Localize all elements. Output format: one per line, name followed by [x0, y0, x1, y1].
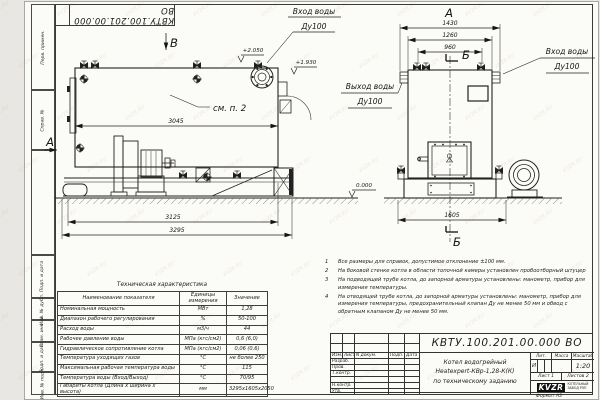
table-row: Номинальная мощностьМВт1,28	[58, 306, 268, 316]
table-row: Рабочее давление водыМПа (кгс/см2)0,6 (6…	[58, 335, 268, 345]
end-inlet-label-1: Вход воды	[546, 47, 588, 56]
note-item: 3На подводящей трубе котла, до запорной …	[325, 277, 588, 292]
drawing-page: Перв. примен. Справ. № Подп. и дата Инв.…	[0, 0, 600, 400]
section-label-b-top: Б	[462, 48, 470, 62]
manufacturer-logo: KVZR КОТЕЛЬНЫЙ ЗАВОД РЭП	[531, 381, 594, 393]
dim-3125: 3125	[165, 214, 180, 221]
kvzr-logo: KVZR	[537, 383, 566, 392]
table-row: Температура уходящих газов°Сне более 250	[58, 354, 268, 364]
table-row: Максимальная рабочая температура воды°С1…	[58, 364, 268, 374]
title-block-sheets: Листов 2	[562, 373, 594, 380]
elev-2050: +2.050	[243, 48, 264, 54]
spec-table: Наименование показателя Единицы измерени…	[57, 291, 268, 397]
see-note-text: см. п. 2	[213, 104, 246, 114]
end-outlet-label-2: Ду100	[357, 97, 383, 106]
dim-3295: 3295	[169, 227, 184, 234]
note-item: 1Все размеры для справок, допустимое отк…	[325, 259, 588, 267]
spec-table-title: Техническая характеристика	[57, 282, 267, 288]
note-item: 2На боковой стенке котла в области топоч…	[325, 268, 588, 276]
spec-table-body: Номинальная мощностьМВт1,28Диапазон рабо…	[58, 306, 268, 397]
table-row: Гидравлическое сопротивление котлаМПа (к…	[58, 345, 268, 355]
spec-header-name: Наименование показателя	[58, 292, 180, 306]
table-row: Диапазон рабочего регулирования%50-100	[58, 315, 268, 325]
title-block-sheet: Лист 1	[531, 373, 562, 380]
side-view	[44, 17, 376, 239]
dim-1430: 1430	[442, 20, 457, 27]
elev-1930: +1.930	[296, 60, 317, 66]
title-block-scale: 1:20	[572, 360, 594, 372]
table-row: Габариты котла (Длина х ширина х высота)…	[58, 384, 268, 397]
title-block-part-name: Котел водогрейный Heatexpert-КВр-1,28-К(…	[419, 353, 531, 394]
title-block-right: Лит. Масса Масштаб И 1:20 Лист 1 Листов …	[531, 353, 594, 394]
spec-header-unit: Единицы измерения	[180, 292, 227, 306]
notes-list: 1Все размеры для справок, допустимое отк…	[325, 259, 588, 318]
dim-3045: 3045	[168, 118, 183, 125]
end-outlet-label-1: Выход воды	[346, 82, 394, 91]
end-inlet-label-2: Ду100	[554, 62, 580, 71]
dim-960: 960	[444, 44, 456, 51]
format-label: Формат А3	[505, 394, 593, 399]
note-item: 4На отводящей трубе котла, до запорной а…	[325, 294, 588, 317]
elev-0000: 0.000	[356, 183, 372, 189]
spec-header-value: Значение	[227, 292, 268, 306]
title-block-doc-number: КВТУ.100.201.00.000 ВО	[419, 334, 594, 353]
view-label-v: В	[170, 36, 178, 50]
view-label-a-side: А	[45, 135, 54, 149]
side-inlet-label-1: Вход воды	[293, 7, 335, 16]
title-block-signature-grid: Изм. Лист N докум. Подп. Дата Разраб. Пр…	[331, 334, 419, 394]
side-inlet-label-2: Ду100	[301, 22, 327, 31]
dim-1260: 1260	[442, 32, 457, 39]
section-label-b-bottom: Б	[453, 235, 461, 249]
dim-1605: 1605	[444, 212, 459, 219]
table-row: Расход водым3/ч44	[58, 325, 268, 335]
end-view-texts: А Б Б 1430 1260 960 1605 Вход воды Ду100…	[346, 6, 588, 249]
view-label-a-end: А	[444, 6, 453, 20]
title-block: КВТУ.100.201.00.000 ВО Изм. Лист N докум…	[330, 333, 593, 393]
